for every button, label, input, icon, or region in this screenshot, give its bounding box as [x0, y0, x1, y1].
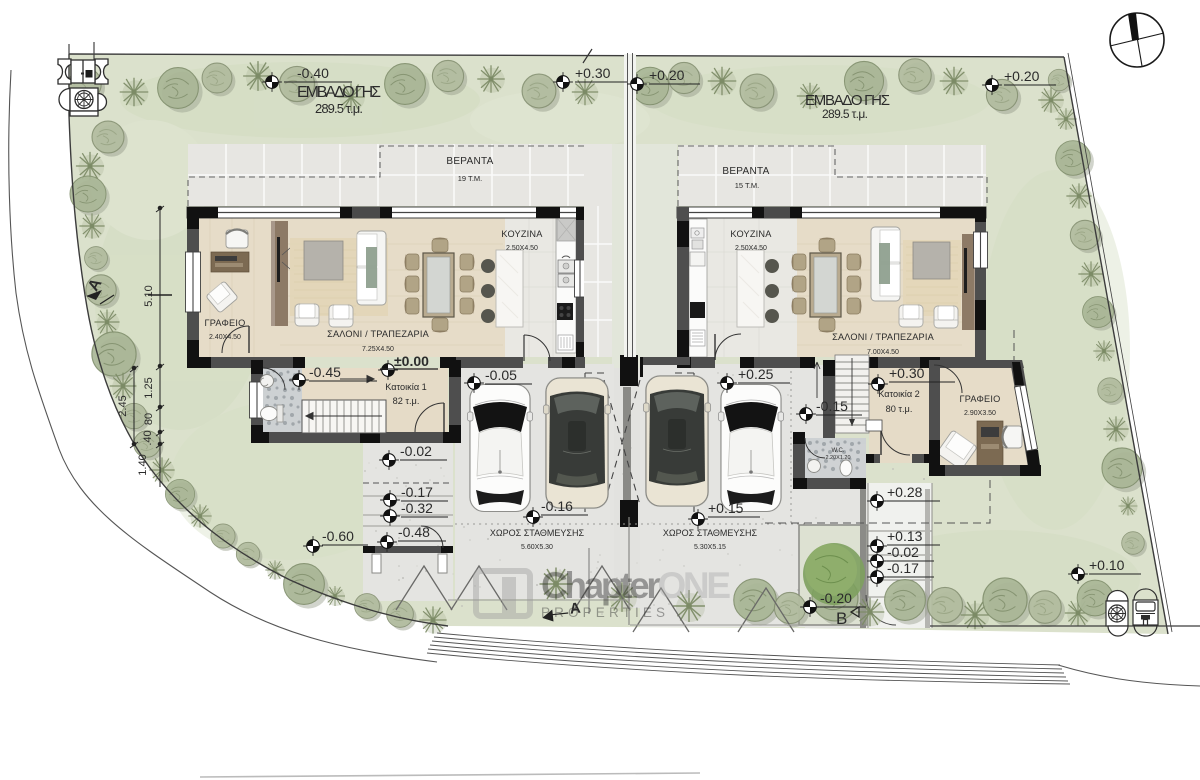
svg-text:ΓΡΑΦΕΙΟ: ΓΡΑΦΕΙΟ: [205, 318, 246, 328]
svg-text:2.40Χ4.50: 2.40Χ4.50: [209, 334, 241, 341]
svg-text:-0.16: -0.16: [541, 498, 573, 514]
svg-text:ΕΜΒΑΔΟ ΓΗΣ: ΕΜΒΑΔΟ ΓΗΣ: [297, 84, 381, 101]
svg-text:+0.15: +0.15: [708, 500, 744, 516]
svg-text:-0.05: -0.05: [485, 367, 517, 383]
svg-text:ΣΑΛΟΝΙ / ΤΡΑΠΕΖΑΡΙΑ: ΣΑΛΟΝΙ / ΤΡΑΠΕΖΑΡΙΑ: [327, 329, 430, 339]
svg-text:+0.25: +0.25: [738, 366, 774, 382]
svg-text:7.00Χ4.50: 7.00Χ4.50: [867, 349, 899, 356]
svg-text:-0.45: -0.45: [309, 364, 341, 380]
svg-text:ΧΩΡΟΣ ΣΤΑΘΜΕΥΣΗΣ: ΧΩΡΟΣ ΣΤΑΘΜΕΥΣΗΣ: [490, 528, 585, 538]
svg-text:-0.20: -0.20: [820, 590, 852, 606]
svg-text:2.45: 2.45: [117, 395, 129, 416]
svg-text:W.C.: W.C.: [832, 448, 845, 454]
svg-text:+0.30: +0.30: [889, 365, 925, 381]
svg-text:-0.40: -0.40: [297, 65, 329, 81]
svg-text:+0.20: +0.20: [1004, 68, 1040, 84]
svg-text:ΓΡΑΦΕΙΟ: ΓΡΑΦΕΙΟ: [960, 394, 1001, 404]
svg-text:+0.20: +0.20: [649, 67, 685, 83]
svg-text:15 Τ.Μ.: 15 Τ.Μ.: [735, 181, 759, 190]
svg-text:289.5 τ.μ.: 289.5 τ.μ.: [315, 101, 363, 116]
svg-text:ΚΟΥΖΙΝΑ: ΚΟΥΖΙΝΑ: [501, 229, 543, 239]
svg-text:1.25: 1.25: [143, 377, 155, 398]
svg-text:+0.28: +0.28: [887, 484, 923, 500]
svg-text:1.40: 1.40: [137, 454, 149, 475]
svg-text:-0.48: -0.48: [398, 524, 430, 540]
svg-text:2.90Χ3.50: 2.90Χ3.50: [964, 410, 996, 417]
svg-text:80 τ.μ.: 80 τ.μ.: [886, 404, 913, 414]
svg-text:-0.17: -0.17: [887, 560, 919, 576]
svg-text:2.50Χ4.50: 2.50Χ4.50: [735, 245, 767, 252]
svg-text:ΚΟΥΖΙΝΑ: ΚΟΥΖΙΝΑ: [730, 229, 772, 239]
svg-text:PROPERTIES: PROPERTIES: [541, 605, 665, 620]
svg-text:-0.02: -0.02: [887, 544, 919, 560]
svg-text:80: 80: [143, 413, 155, 425]
svg-text:ChapterONE: ChapterONE: [541, 565, 731, 606]
svg-text:+0.13: +0.13: [887, 528, 923, 544]
svg-text:5.30Χ5.15: 5.30Χ5.15: [694, 544, 726, 551]
svg-text:2.20Χ1.20: 2.20Χ1.20: [825, 455, 850, 461]
svg-text:+0.30: +0.30: [575, 65, 611, 81]
svg-text:5.60Χ5.30: 5.60Χ5.30: [521, 544, 553, 551]
svg-text:+0.10: +0.10: [1089, 557, 1125, 573]
svg-text:ΣΑΛΟΝΙ / ΤΡΑΠΕΖΑΡΙΑ: ΣΑΛΟΝΙ / ΤΡΑΠΕΖΑΡΙΑ: [832, 332, 935, 342]
svg-text:Κατοικία 2: Κατοικία 2: [878, 389, 920, 399]
svg-text:-0.60: -0.60: [322, 528, 354, 544]
svg-text:ΧΩΡΟΣ ΣΤΑΘΜΕΥΣΗΣ: ΧΩΡΟΣ ΣΤΑΘΜΕΥΣΗΣ: [663, 528, 758, 538]
svg-text:289.5 τ.μ.: 289.5 τ.μ.: [822, 107, 868, 121]
svg-text:ΒΕΡΑΝΤΑ: ΒΕΡΑΝΤΑ: [446, 156, 493, 167]
svg-text:-0.02: -0.02: [400, 443, 432, 459]
svg-text:±0.00: ±0.00: [394, 353, 429, 369]
svg-text:2.50Χ4.50: 2.50Χ4.50: [506, 245, 538, 252]
svg-text:-0.17: -0.17: [401, 484, 433, 500]
svg-text:7.25Χ4.50: 7.25Χ4.50: [362, 346, 394, 353]
svg-text:-0.15: -0.15: [816, 398, 848, 414]
svg-text:B: B: [836, 609, 847, 628]
svg-text:.40: .40: [142, 430, 154, 445]
svg-text:Κατοικία 1: Κατοικία 1: [385, 382, 427, 392]
svg-text:19 Τ.Μ.: 19 Τ.Μ.: [458, 174, 482, 183]
svg-text:82 τ.μ.: 82 τ.μ.: [393, 396, 420, 406]
svg-text:ΒΕΡΑΝΤΑ: ΒΕΡΑΝΤΑ: [722, 166, 769, 177]
svg-text:-0.32: -0.32: [401, 500, 433, 516]
svg-text:5.10: 5.10: [143, 285, 155, 306]
